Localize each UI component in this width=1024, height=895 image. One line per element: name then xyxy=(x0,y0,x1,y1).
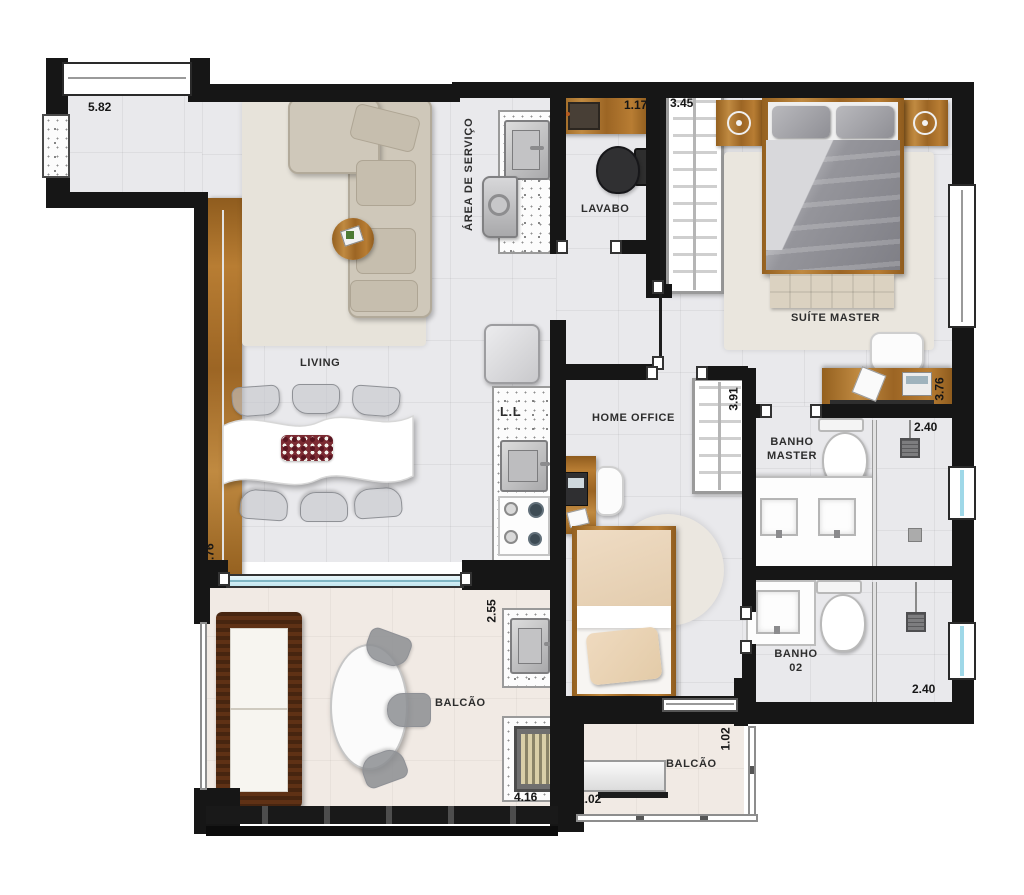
wall-right xyxy=(952,592,974,624)
wall-lavabo-east xyxy=(646,84,666,298)
banho-master-toilet-tank xyxy=(818,418,864,432)
dim-balcao-depth: 2.55 xyxy=(485,599,499,622)
suite-pillow xyxy=(772,106,830,138)
suite-window-glass xyxy=(961,190,963,322)
dim-corridor-width: 5.82 xyxy=(88,100,111,114)
laundry-faucet xyxy=(530,146,544,150)
door-frame xyxy=(652,280,664,294)
balcony-2-bench xyxy=(582,760,666,792)
balcony-2-bottom-railing xyxy=(576,814,758,822)
wall-top-right-wing xyxy=(452,82,974,98)
magazine-art xyxy=(346,231,354,239)
banho-master-label: BANHO MASTER xyxy=(756,436,828,464)
washing-machine-door xyxy=(488,194,510,216)
office-chair xyxy=(596,466,624,516)
dim-suite-desk: 3.76 xyxy=(933,377,947,400)
balcony-1-railing-base xyxy=(206,826,558,836)
door-frame xyxy=(610,240,622,254)
wall-banhos-divider xyxy=(742,566,974,580)
door-frame xyxy=(696,366,708,380)
shower-head-master xyxy=(900,438,920,458)
banho-02-toilet-tank xyxy=(816,580,862,594)
dim-office-wardrobe: 3.91 xyxy=(727,387,741,410)
suite-bench xyxy=(770,274,894,308)
shower-head-02 xyxy=(906,612,926,632)
dishwasher-label: L.L xyxy=(500,404,521,419)
suite-master-label: SUÍTE MASTER xyxy=(791,312,880,324)
shower-pipe-02 xyxy=(915,582,917,612)
dim-lavabo-width: 1.17 xyxy=(624,98,647,112)
vanity-faucet-left xyxy=(776,530,782,538)
suite-laptop-screen xyxy=(906,376,928,384)
stove-burner xyxy=(504,530,518,544)
wicker-sofa-cushion-split xyxy=(230,708,288,710)
banho-master-window-glass xyxy=(960,470,964,516)
home-office-label: HOME OFFICE xyxy=(592,412,675,424)
wall-living-top xyxy=(188,84,460,102)
door-frame xyxy=(218,572,230,586)
wall-right xyxy=(952,326,974,422)
balcony-2-bench-shadow xyxy=(598,792,668,798)
sofa-seat xyxy=(350,280,418,312)
living-label: LIVING xyxy=(300,357,340,369)
railing-post xyxy=(700,816,708,820)
railing-post xyxy=(750,766,754,774)
vanity-faucet-right xyxy=(834,530,840,538)
wall-right xyxy=(952,82,974,186)
door-frame xyxy=(740,640,752,654)
stove-burner xyxy=(528,532,542,546)
stove-burner xyxy=(528,502,544,518)
side-window-sill xyxy=(42,114,70,178)
suite-duvet-fold xyxy=(766,140,836,250)
wall-living-west xyxy=(194,192,208,576)
sofa-cushion xyxy=(356,160,416,206)
balcony-chair xyxy=(387,693,431,727)
office-bed-sheet-fold xyxy=(577,606,671,628)
office-balcony-door xyxy=(662,698,738,712)
balcony-1-railing xyxy=(206,806,558,824)
wall-bathrooms-bottom xyxy=(742,702,974,724)
wicker-sofa-cushions xyxy=(230,628,288,792)
gourmet-sink-basin xyxy=(518,628,542,664)
suite-door-leaf xyxy=(659,290,662,362)
office-balcony-door-track xyxy=(666,703,734,705)
office-bed-blanket xyxy=(577,530,671,614)
wall-corridor-bottom xyxy=(46,192,204,208)
door-frame xyxy=(646,366,658,380)
wall xyxy=(550,566,566,706)
shower-partition-master xyxy=(872,420,877,568)
sideboard-metal-trim xyxy=(222,210,224,566)
dim-suite-closet: 3.45 xyxy=(670,96,693,110)
wall-right xyxy=(952,422,974,468)
grill-grate xyxy=(521,734,551,784)
banho-02-toilet-bowl xyxy=(820,594,866,652)
wall-kitchen-upper xyxy=(550,88,566,246)
balcao-1-label: BALCÃO xyxy=(435,697,486,709)
refrigerator xyxy=(484,324,540,384)
door-frame xyxy=(460,572,472,586)
wall-balcony-corner xyxy=(194,574,210,624)
kitchen-faucet xyxy=(540,462,550,466)
door-frame xyxy=(810,404,822,418)
laundry-sink-basin xyxy=(512,130,540,170)
suite-closet-pole xyxy=(693,94,696,290)
shower-drain-master xyxy=(908,528,922,542)
office-computer-screen xyxy=(568,478,584,488)
wall-living-bottom xyxy=(462,560,558,590)
banho-02-label: BANHO 02 xyxy=(766,648,826,676)
dim-shower-02: 2.40 xyxy=(912,682,935,696)
lavabo-toilet-bowl xyxy=(596,146,640,194)
wall-suite-banho xyxy=(816,404,952,418)
banho-02-faucet xyxy=(774,626,780,634)
wall-office-top xyxy=(550,364,654,380)
door-frame xyxy=(760,404,772,418)
lavabo-label: LAVABO xyxy=(581,203,629,215)
sliding-door-track xyxy=(226,580,464,582)
office-bed-pillow xyxy=(585,626,662,685)
stove-burner xyxy=(504,502,518,516)
floor-plan: LIVING 5.76 5.82 L.L ÁREA DE SERVIÇO LAV… xyxy=(0,0,1024,895)
dim-shower-master: 2.40 xyxy=(914,420,937,434)
office-wardrobe-pole xyxy=(718,382,721,490)
lavabo-sink xyxy=(568,102,600,130)
suite-pillow xyxy=(836,106,894,138)
wall-kitchen-lower xyxy=(550,320,566,570)
shower-partition-02 xyxy=(872,582,877,704)
banho-02-window-glass xyxy=(960,626,964,676)
dim-balcao-2-depth: 1.02 xyxy=(719,727,733,750)
kitchen-sink-basin xyxy=(508,450,538,482)
area-servico-label: ÁREA DE SERVIÇO xyxy=(463,121,475,231)
wall-right xyxy=(952,518,974,592)
railing-post xyxy=(636,816,644,820)
table-centerpiece-flowers xyxy=(281,435,333,461)
shower-pipe-master xyxy=(909,420,911,440)
corridor-window xyxy=(62,62,192,96)
door-frame xyxy=(740,606,752,620)
balcao-2-label: BALCÃO xyxy=(666,758,717,770)
door-frame xyxy=(556,240,568,254)
corridor-window-glass xyxy=(68,77,186,79)
balcony-1-left-railing xyxy=(200,622,207,790)
dim-balcao-width: 4.16 xyxy=(514,790,537,804)
